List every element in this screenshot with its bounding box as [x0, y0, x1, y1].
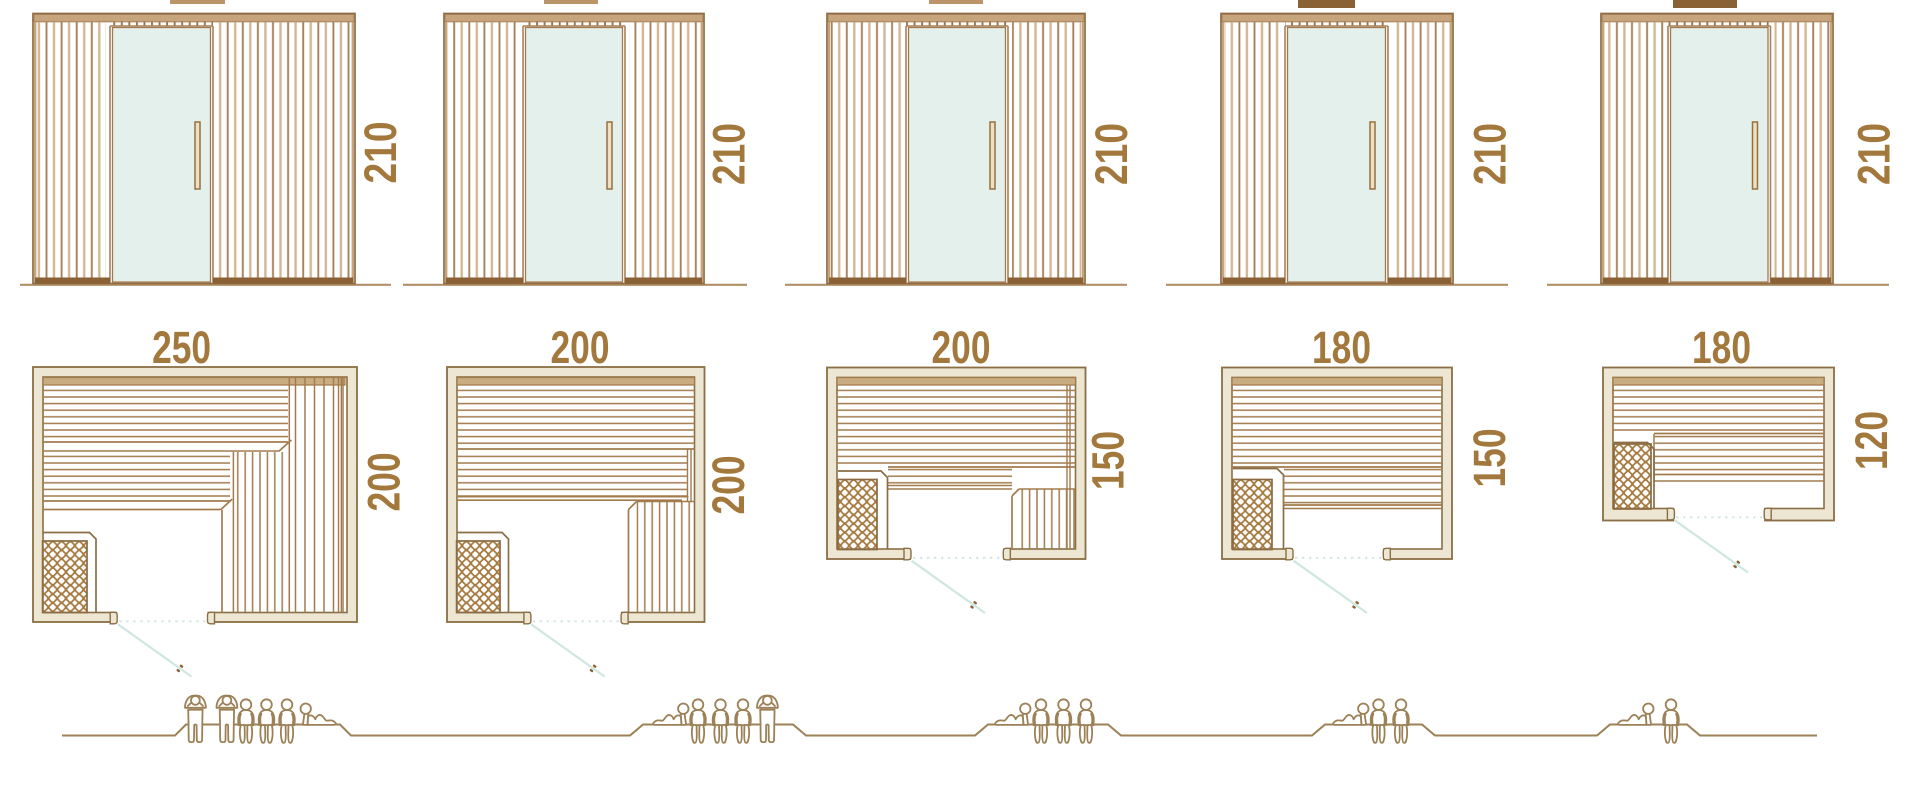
svg-text:120: 120 — [1846, 411, 1897, 470]
svg-text:200: 200 — [932, 322, 991, 373]
svg-text:210: 210 — [1849, 123, 1900, 185]
svg-text:150: 150 — [1083, 431, 1134, 490]
svg-text:180: 180 — [1312, 322, 1371, 373]
svg-text:210: 210 — [704, 123, 755, 185]
svg-text:210: 210 — [1465, 123, 1516, 185]
svg-text:200: 200 — [703, 456, 754, 515]
svg-text:210: 210 — [355, 122, 406, 184]
svg-text:250: 250 — [152, 322, 211, 373]
svg-text:150: 150 — [1464, 429, 1515, 488]
svg-text:180: 180 — [1692, 322, 1751, 373]
svg-text:210: 210 — [1086, 123, 1137, 185]
svg-text:200: 200 — [359, 453, 410, 512]
svg-text:200: 200 — [551, 322, 610, 373]
